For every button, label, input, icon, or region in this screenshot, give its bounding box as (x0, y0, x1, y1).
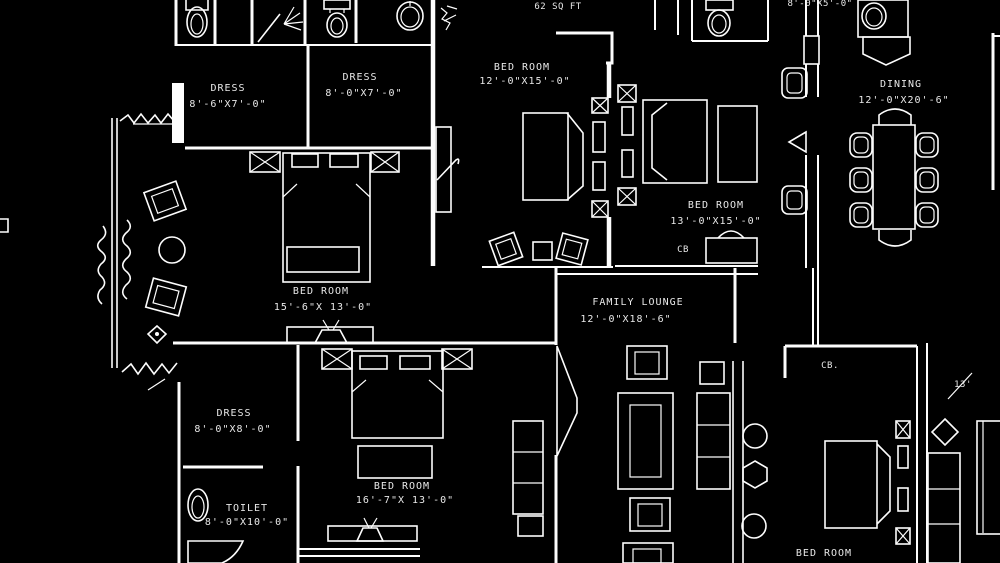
room-label-dress1: DRESS (210, 83, 245, 94)
closet-label-2: CB. (821, 361, 839, 371)
closet-label-1: CB (677, 245, 689, 255)
floor-plan-page: DRESS 8'-6"X7'-0" DRESS 8'-0"X7'-0" BED … (0, 0, 1000, 563)
room-label-toilet: TOILET (226, 503, 268, 514)
room-label-bed-right: BED ROOM (796, 548, 852, 559)
room-dims-dining: 12'-0"X20'-6" (858, 95, 949, 106)
room-dims-bed-bottom: 16'-7"X 13'-0" (356, 495, 454, 506)
room-dims-bed-mid: 13'-0"X15'-0" (670, 216, 761, 227)
room-label-dress3: DRESS (216, 408, 251, 419)
dim-fragment-right: 13' (954, 380, 972, 390)
area-sqft-label: 62 SQ FT (534, 2, 581, 12)
room-label-dining: DINING (880, 79, 922, 90)
room-label-bed-left: BED ROOM (293, 286, 349, 297)
room-dims-dress3: 8'-0"X8'-0" (194, 424, 271, 435)
room-label-lounge: FAMILY LOUNGE (592, 297, 683, 308)
floor-plan-canvas: DRESS 8'-6"X7'-0" DRESS 8'-0"X7'-0" BED … (0, 0, 1000, 563)
dim-fragment-top: 8'-0"X5'-0" (787, 0, 852, 9)
room-label-bed-top: BED ROOM (494, 62, 550, 73)
room-dims-bed-top: 12'-0"X15'-0" (479, 76, 570, 87)
room-dims-dress1: 8'-6"X7'-0" (189, 99, 266, 110)
room-dims-toilet: 8'-0"X10'-0" (205, 517, 289, 528)
room-label-bed-mid: BED ROOM (688, 200, 744, 211)
room-dims-bed-left: 15'-6"X 13'-0" (274, 302, 372, 313)
room-label-bed-bottom: BED ROOM (374, 481, 430, 492)
room-dims-lounge: 12'-0"X18'-6" (580, 314, 671, 325)
wall-pier (172, 83, 184, 143)
room-label-dress2: DRESS (342, 72, 377, 83)
room-dims-dress2: 8'-0"X7'-0" (325, 88, 402, 99)
